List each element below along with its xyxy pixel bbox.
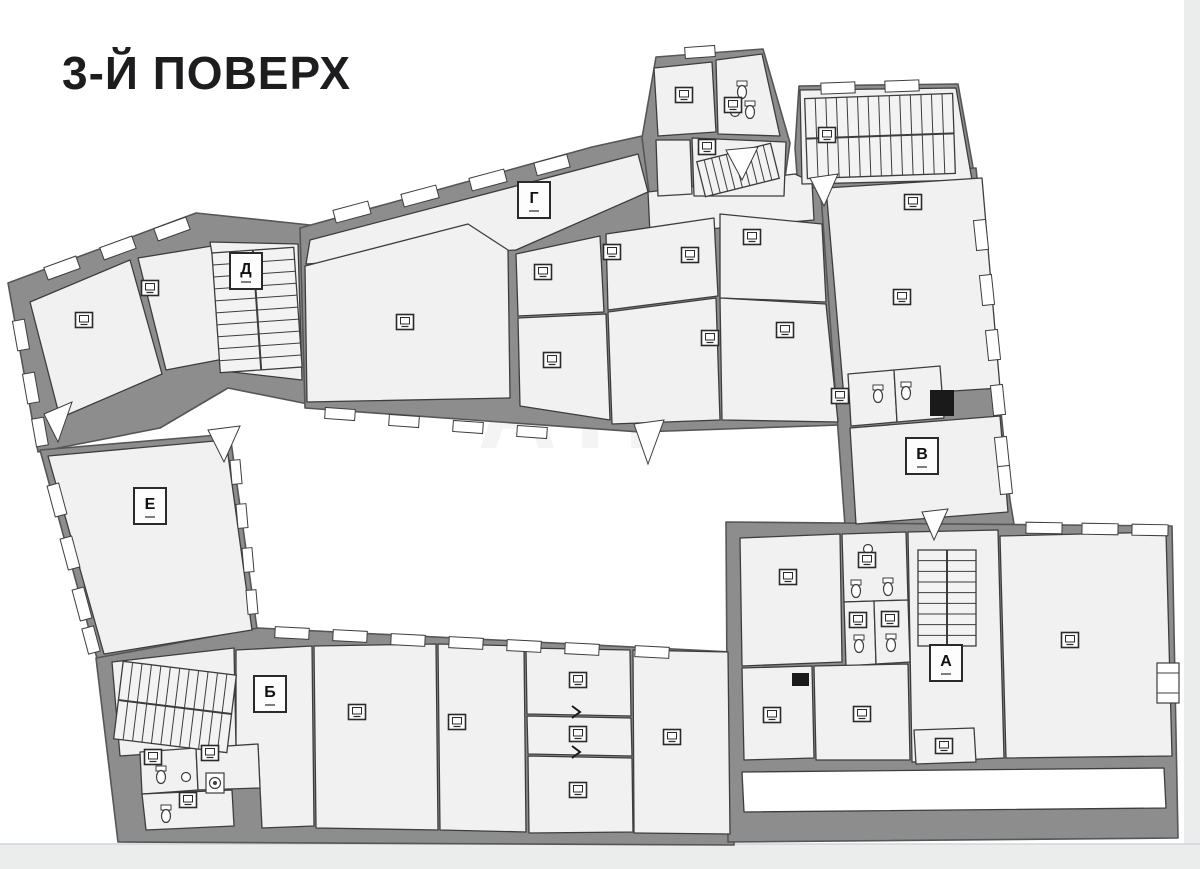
room-wc-a3 — [874, 600, 910, 664]
window — [985, 329, 1000, 360]
room-marker — [859, 553, 876, 568]
page-title: 3-Й ПОВЕРХ — [62, 46, 351, 100]
room-bb2 — [438, 644, 526, 832]
window — [275, 627, 310, 640]
stair-b — [114, 661, 237, 752]
room-marker — [854, 707, 871, 722]
room-marker — [699, 140, 716, 155]
room-wc-a2 — [844, 601, 876, 666]
room-marker — [397, 315, 414, 330]
window — [565, 643, 600, 656]
shaft-block — [792, 673, 809, 686]
balcony — [742, 768, 1166, 812]
room-marker — [142, 281, 159, 296]
svg-text:А: А — [940, 653, 952, 670]
svg-text:Е: Е — [145, 496, 156, 513]
window — [979, 274, 994, 305]
svg-text:Б: Б — [264, 684, 276, 701]
floor-plan-svg: АНГДЕБВА — [0, 0, 1200, 869]
sink-icon — [182, 773, 191, 782]
svg-text:Г: Г — [529, 190, 538, 207]
window — [333, 630, 368, 643]
window — [246, 590, 258, 615]
window — [230, 460, 242, 485]
room-marker — [664, 730, 681, 745]
window — [449, 637, 484, 650]
room-marker — [449, 715, 466, 730]
room-marker — [570, 783, 587, 798]
room-t3 — [656, 140, 692, 196]
stair-a — [918, 550, 976, 646]
window — [453, 420, 484, 433]
window — [325, 407, 356, 420]
window — [389, 414, 420, 427]
svg-text:В: В — [916, 446, 928, 463]
toilet-icon — [901, 382, 911, 400]
room-marker — [676, 88, 693, 103]
window — [990, 384, 1005, 415]
window — [994, 436, 1009, 467]
room-marker — [702, 331, 719, 346]
room-c2 — [606, 218, 718, 310]
room-marker — [744, 230, 761, 245]
room-bb1 — [314, 644, 438, 830]
window — [885, 80, 919, 92]
room-bb6 — [633, 650, 730, 834]
window — [242, 548, 254, 573]
window — [236, 504, 248, 529]
toilet-icon — [745, 101, 755, 119]
window — [821, 82, 855, 94]
toilet-icon — [851, 580, 861, 598]
room-marker — [544, 353, 561, 368]
section-label-Д: Д — [230, 253, 262, 289]
toilet-icon — [161, 805, 171, 823]
section-label-Е: Е — [134, 488, 166, 524]
section-label-Б: Б — [254, 676, 286, 712]
right-margin-strip — [1184, 0, 1200, 869]
bottom-margin-strip — [0, 844, 1200, 869]
toilet-icon — [854, 635, 864, 653]
room-c4 — [608, 298, 720, 424]
room-marker — [832, 389, 849, 404]
room-marker — [570, 727, 587, 742]
section-label-Г: Г — [518, 182, 550, 218]
toilet-icon — [883, 578, 893, 596]
room-c5 — [720, 298, 838, 422]
toilet-icon — [886, 634, 896, 652]
window — [391, 634, 426, 647]
room-right-big — [826, 178, 1000, 398]
room-c6 — [518, 314, 610, 420]
room-marker — [682, 248, 699, 263]
room-marker — [180, 793, 197, 808]
svg-text:Д: Д — [240, 261, 252, 278]
room-wc-r1 — [848, 370, 897, 426]
window — [507, 640, 542, 653]
room-marker — [1062, 633, 1079, 648]
window — [1132, 524, 1168, 536]
room-marker — [882, 612, 899, 627]
room-br-large — [1000, 532, 1172, 758]
toilet-icon — [737, 81, 747, 99]
window — [635, 646, 670, 659]
floor-plan-page: АНГДЕБВА 3-Й ПОВЕРХ — [0, 0, 1200, 869]
wall-niche — [1157, 663, 1179, 703]
room-marker — [349, 705, 366, 720]
toilet-icon — [873, 385, 883, 403]
room-marker — [850, 613, 867, 628]
section-label-А: А — [930, 645, 962, 681]
window — [1082, 523, 1118, 535]
window — [517, 425, 548, 438]
room-marker — [936, 739, 953, 754]
room-marker — [894, 290, 911, 305]
room-marker — [725, 98, 742, 113]
window — [973, 219, 988, 250]
room-br1 — [740, 534, 842, 666]
room-marker — [76, 313, 93, 328]
room-marker — [764, 708, 781, 723]
room-marker — [777, 323, 794, 338]
room-marker — [819, 128, 836, 143]
window — [998, 465, 1013, 494]
room-c3 — [720, 214, 826, 302]
room-marker — [780, 570, 797, 585]
room-marker — [202, 746, 219, 761]
window — [685, 45, 716, 58]
washer-icon — [206, 773, 224, 793]
room-marker — [905, 195, 922, 210]
window — [1026, 522, 1062, 534]
room-marker — [535, 265, 552, 280]
room-marker — [570, 673, 587, 688]
room-marker — [604, 245, 621, 260]
shaft-block — [930, 390, 954, 416]
toilet-icon — [156, 766, 166, 784]
room-marker — [145, 750, 162, 765]
section-label-В: В — [906, 438, 938, 474]
